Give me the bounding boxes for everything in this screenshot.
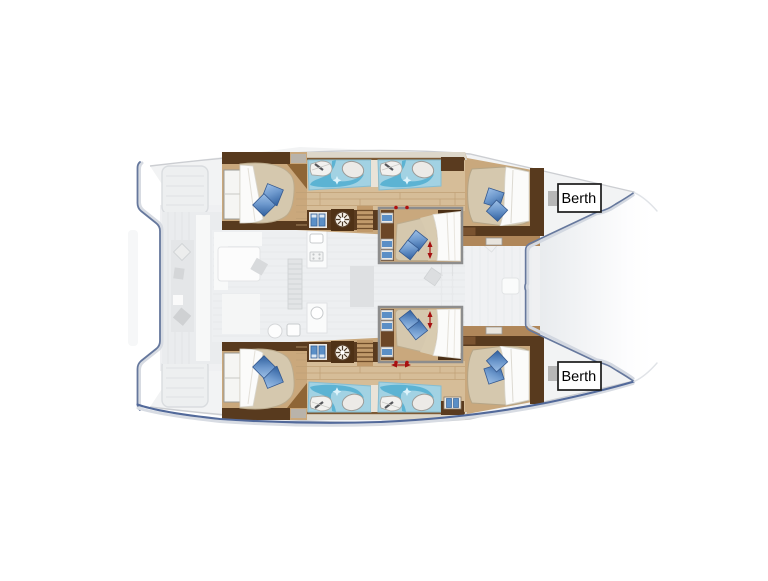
svg-text:Berth: Berth xyxy=(562,191,597,207)
svg-text:Berth: Berth xyxy=(562,369,597,385)
